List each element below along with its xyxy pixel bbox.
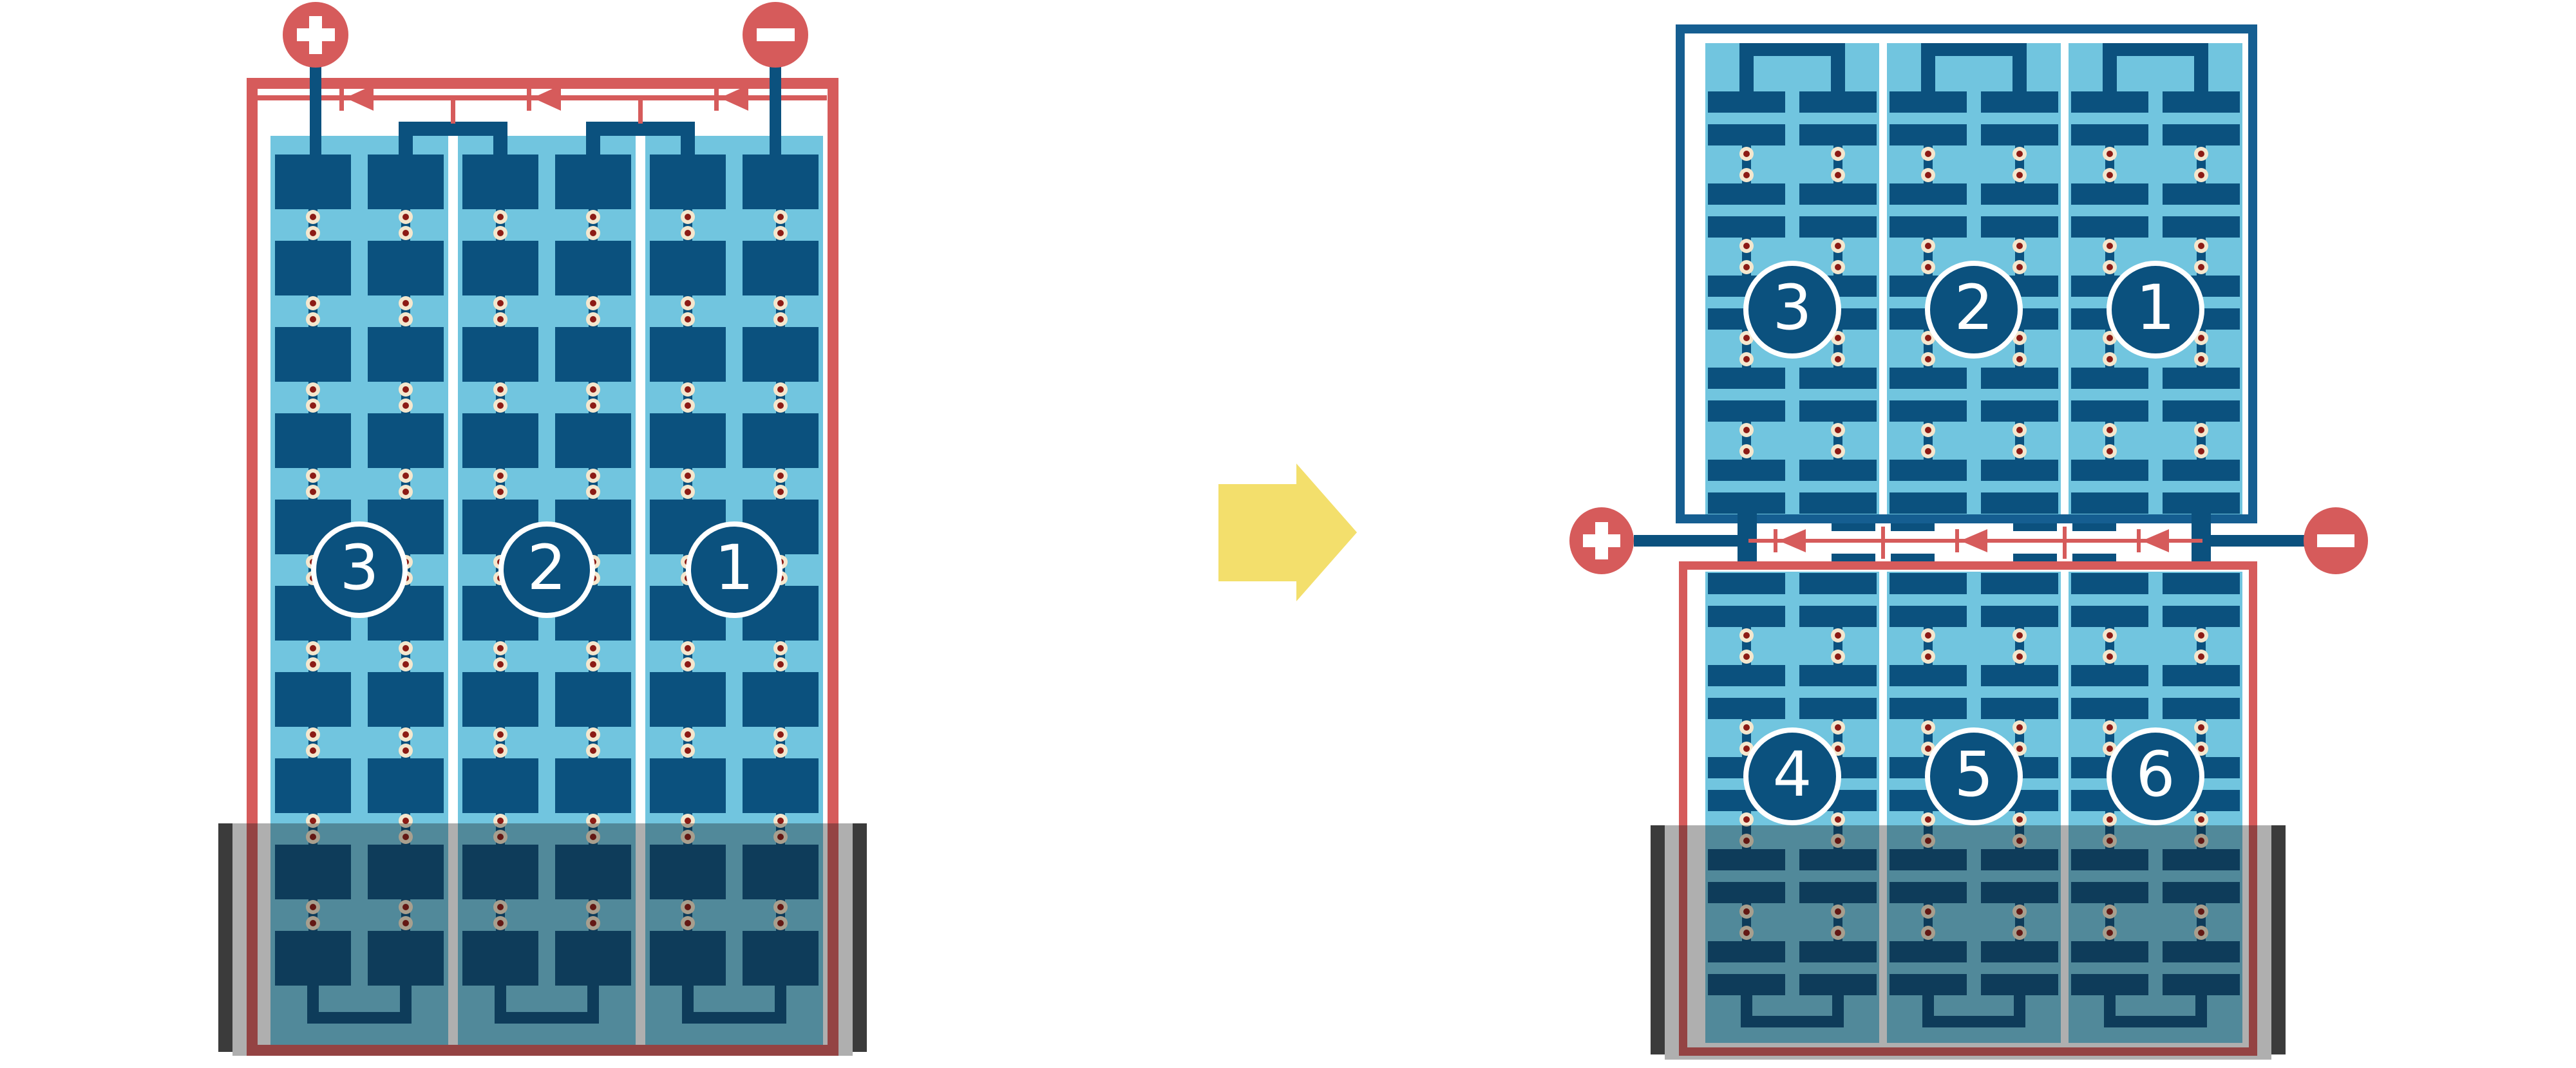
- junction-tab: [1891, 554, 1935, 561]
- shade-cap: [2271, 825, 2286, 1054]
- terminal-wire: [1634, 535, 1739, 547]
- junction-tap: [2063, 527, 2067, 559]
- junction-tap: [1881, 527, 1885, 559]
- minus-icon: [2317, 534, 2354, 547]
- junction-tab: [1832, 554, 1875, 561]
- terminal-label: −: [2304, 507, 2304, 508]
- diode-cathode-bar: [1955, 529, 1959, 552]
- right-module-inner: 321+−456: [0, 0, 2576, 1068]
- diode-cathode-bar: [2137, 529, 2141, 552]
- terminal-label: +: [1569, 507, 1570, 508]
- shade-cap: [1651, 825, 1665, 1054]
- plus-icon: [1595, 522, 1608, 559]
- diagram-canvas: +−321 321+−456: [0, 0, 2576, 1068]
- right-module-half-cut-panel: 321+−456: [1417, 0, 2576, 1068]
- junction-tab: [1891, 523, 1935, 531]
- junction-tab: [2072, 523, 2116, 531]
- bypass-diode-icon: [2142, 529, 2169, 552]
- diode-cathode-bar: [1774, 529, 1777, 552]
- module-frame: [1676, 24, 2257, 523]
- bypass-diode-icon: [1779, 529, 1806, 552]
- junction-stub: [2192, 502, 2211, 561]
- junction-tab: [2013, 523, 2057, 531]
- shade-overlay: [1665, 825, 2271, 1060]
- junction-stub: [1738, 502, 1757, 561]
- junction-tab: [2013, 554, 2057, 561]
- bypass-diode-icon: [1960, 529, 1987, 552]
- terminal-positive: +: [1569, 507, 1634, 574]
- terminal-wire: [2211, 535, 2305, 547]
- junction-tab: [2072, 554, 2116, 561]
- junction-tab: [1832, 523, 1875, 531]
- terminal-negative: −: [2304, 507, 2368, 574]
